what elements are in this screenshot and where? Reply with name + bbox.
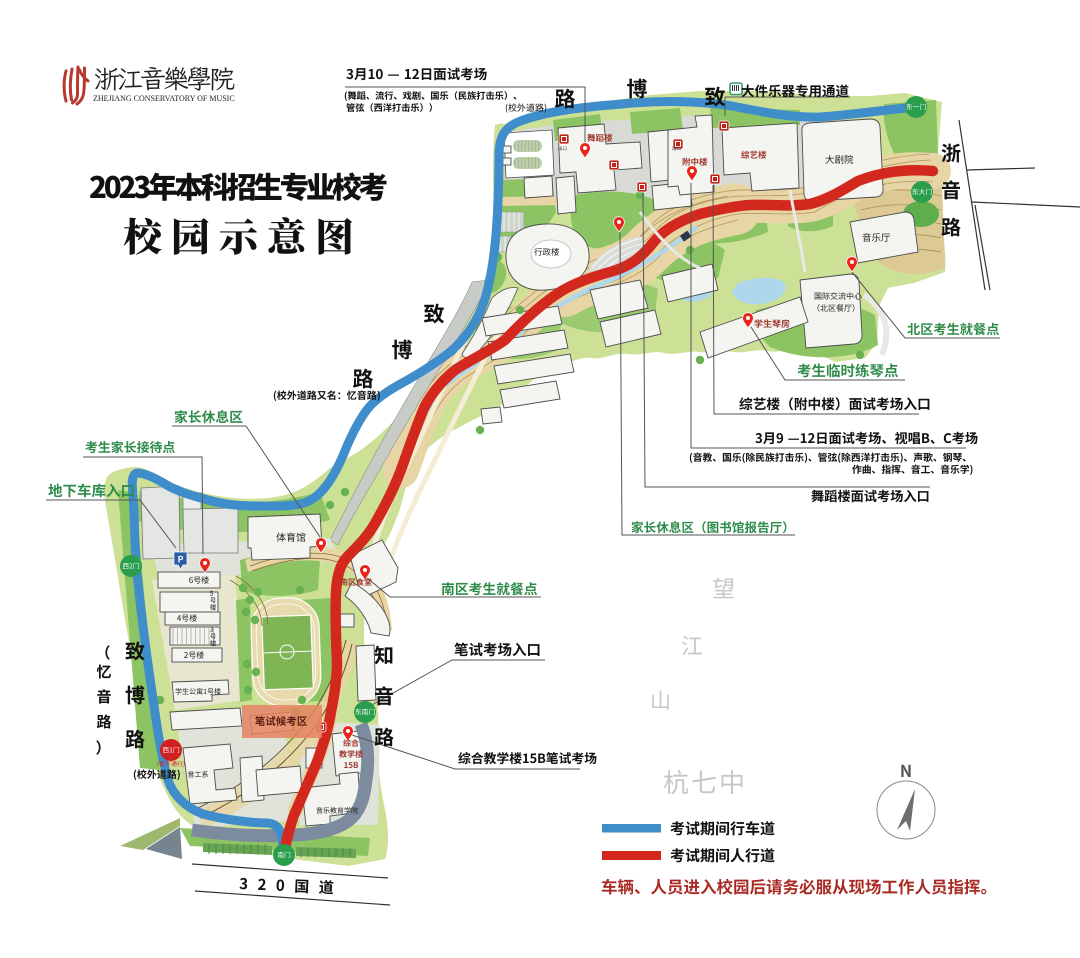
- svg-text:ZHEJIANG CONSERVATORY OF MUSIC: ZHEJIANG CONSERVATORY OF MUSIC: [93, 94, 235, 103]
